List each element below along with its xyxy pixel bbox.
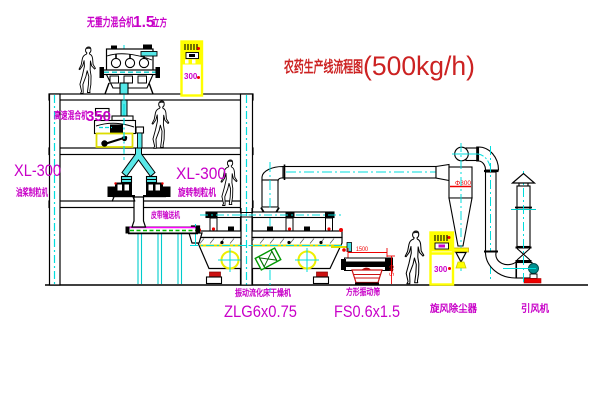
svg-text:540: 540 — [389, 265, 396, 276]
svg-text:XL-300: XL-300 — [14, 162, 61, 180]
svg-text:旋风除尘器: 旋风除尘器 — [429, 302, 478, 315]
svg-text:旋转制粒机: 旋转制粒机 — [177, 186, 216, 199]
svg-text:立方: 立方 — [152, 16, 167, 29]
svg-text:油桨制粒机: 油桨制粒机 — [16, 186, 48, 199]
svg-text:1500: 1500 — [356, 247, 369, 253]
svg-text:350: 350 — [86, 108, 111, 125]
svg-text:皮带输送机: 皮带输送机 — [150, 210, 180, 220]
svg-text:XL-300: XL-300 — [176, 165, 226, 183]
svg-text:高速混合机: 高速混合机 — [54, 109, 88, 122]
svg-text:(500kg/h): (500kg/h) — [363, 51, 475, 81]
svg-text:振动流化床干燥机: 振动流化床干燥机 — [235, 287, 291, 298]
svg-text:FS0.6x1.5: FS0.6x1.5 — [334, 302, 400, 321]
svg-text:无重力混合机: 无重力混合机 — [86, 15, 134, 29]
svg-text:Φ800: Φ800 — [455, 180, 471, 187]
svg-text:ZLG6x0.75: ZLG6x0.75 — [224, 302, 297, 321]
svg-text:300: 300 — [434, 265, 448, 274]
svg-text:300: 300 — [184, 72, 198, 81]
svg-text:农药生产线流程图: 农药生产线流程图 — [283, 57, 363, 76]
svg-text:方形振动筛: 方形振动筛 — [346, 286, 380, 297]
svg-text:引风机: 引风机 — [521, 302, 549, 315]
